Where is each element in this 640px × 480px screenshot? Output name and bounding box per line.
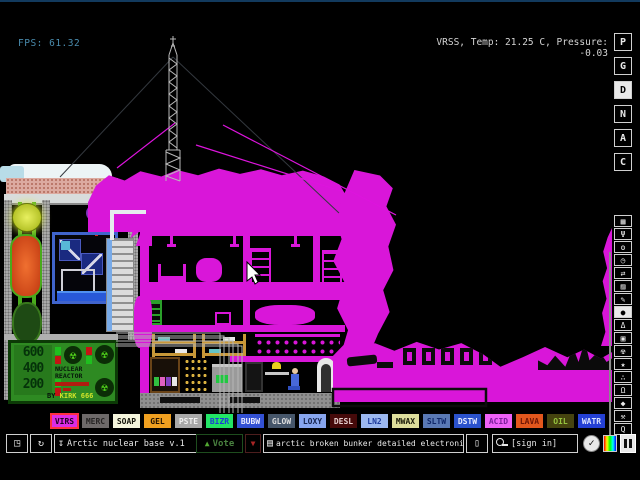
open-icon: ◳: [14, 438, 20, 449]
hanging-tools-rail: [255, 334, 340, 337]
console-machine: [212, 364, 242, 392]
element-palette: VIRSMERCSOAPGELPSTEBIZRBUBWGLOWLOXYDESLL…: [50, 413, 606, 429]
infected-floor: [148, 325, 345, 332]
option-button-g[interactable]: G: [614, 57, 632, 75]
hover-status-text: VRSS, Temp: 21.25 C, Pressure: -0.03: [404, 37, 608, 59]
debris-lump: [347, 354, 378, 366]
menu-icon-solids[interactable]: ▣: [614, 332, 632, 344]
vote-up-icon: ▲: [205, 439, 210, 448]
debris-window: [479, 348, 492, 365]
debris-window: [441, 348, 454, 365]
fps-counter: FPS: 61.32: [18, 38, 80, 49]
ceiling-lamp: [294, 236, 297, 244]
tags-icon: ▤: [267, 438, 273, 449]
menu-icon-electronics-plug[interactable]: Ψ: [614, 228, 632, 240]
pause-icon: [624, 439, 627, 448]
debris-window: [422, 348, 435, 365]
element-button-loxy[interactable]: LOXY: [298, 413, 327, 429]
bottle: [154, 377, 159, 386]
sign-title: NUCLEAR REACTOR: [55, 366, 95, 380]
infected-desk: [158, 264, 186, 282]
reactor-sign: 600 400 200 ☢ ☢ ☢ NUCLEAR REACTOR BY KIR…: [8, 340, 118, 404]
bottle: [172, 377, 177, 386]
interior-wall: [243, 300, 250, 325]
interior-wall: [313, 236, 320, 282]
reload-icon: ↻: [38, 438, 44, 449]
element-button-lava[interactable]: LAVA: [515, 413, 544, 429]
bunk-bed: [152, 334, 196, 358]
arch-door-inner: [321, 364, 331, 392]
option-button-a[interactable]: A: [614, 129, 632, 147]
bottle: [166, 377, 171, 386]
element-button-merc[interactable]: MERC: [81, 413, 110, 429]
bedding: [175, 349, 187, 353]
foundation-slab: [140, 393, 340, 408]
indicator-light: [55, 347, 61, 355]
sign-readout: 600 400 200: [14, 345, 52, 395]
by-label: BY: [47, 392, 55, 400]
sign-red-line: [55, 382, 89, 386]
shelf-rack: [250, 248, 271, 286]
open-simulation-button[interactable]: ◳: [6, 434, 28, 453]
canvas-edge-line: [609, 252, 611, 452]
bedding: [223, 337, 235, 341]
check-icon: ✓: [588, 438, 594, 449]
menu-icon-favorites[interactable]: ◆: [614, 397, 632, 409]
element-button-soap[interactable]: SOAP: [112, 413, 141, 429]
menu-icon-life-dots[interactable]: ∴: [614, 371, 632, 383]
element-button-ln2[interactable]: LN2: [360, 413, 389, 429]
table: [265, 372, 289, 375]
vote-up-button[interactable]: ▲ Vote: [196, 434, 243, 453]
conduit: [160, 397, 200, 403]
ceiling-lamp: [291, 244, 300, 247]
bunk-bed: [202, 334, 246, 358]
element-button-glow[interactable]: GLOW: [267, 413, 296, 429]
element-button-watr[interactable]: WATR: [577, 413, 606, 429]
infected-floor: [148, 282, 348, 300]
dotted-ladder: [184, 358, 208, 392]
indicator-light: [86, 356, 92, 364]
infected-blob: [255, 305, 315, 325]
element-button-acid[interactable]: ACID: [484, 413, 513, 429]
sign-in-button[interactable]: [sign in]: [492, 434, 578, 453]
vote-label: Vote: [213, 439, 235, 449]
vote-down-button[interactable]: ▼: [245, 434, 261, 453]
pause-button[interactable]: [620, 434, 636, 453]
tags-label: arctic broken bunker detailed electronic…: [276, 439, 464, 448]
infected-blob: [196, 258, 222, 282]
readout-line: 200: [14, 377, 52, 393]
clear-simulation-button[interactable]: ▯: [466, 434, 488, 453]
sidebar-option-buttons: PGDNAC: [614, 33, 632, 171]
tank-green: [12, 302, 42, 344]
interior-wall: [243, 236, 250, 282]
menu-icon-powered[interactable]: ʘ: [614, 241, 632, 253]
new-file-icon: ▯: [474, 438, 480, 449]
ceiling-lamp: [230, 244, 239, 247]
bedding: [209, 349, 221, 353]
readout-line: 400: [14, 361, 52, 377]
bottle: [160, 377, 165, 386]
element-button-bizr[interactable]: BIZR: [205, 413, 234, 429]
hanging-tools: [255, 338, 340, 356]
radiation-symbol: ☢: [95, 345, 114, 364]
option-button-n[interactable]: N: [614, 105, 632, 123]
heat-exchanger: [106, 238, 134, 332]
table-lamp: [272, 362, 281, 369]
lockers: [150, 357, 180, 393]
arch-door: [317, 358, 335, 392]
virus-ground: [333, 338, 612, 402]
menu-icon-explosives-spray[interactable]: ▨: [614, 280, 632, 292]
element-button-oil[interactable]: OIL: [546, 413, 575, 429]
menu-icon-hammer[interactable]: ⚒: [614, 410, 632, 422]
author-name: KIRK 666: [60, 392, 94, 400]
sandbox-check-button[interactable]: ✓: [583, 435, 600, 452]
radiation-symbol: ☢: [95, 378, 114, 397]
cyan-console: [61, 241, 70, 250]
menu-icon-sensors-gauge[interactable]: ◷: [614, 254, 632, 266]
menu-icon-gases-lamp[interactable]: Ω: [614, 384, 632, 396]
key-icon: [496, 438, 508, 449]
simulation-canvas[interactable]: 600 400 200 ☢ ☢ ☢ NUCLEAR REACTOR BY KIR…: [0, 0, 612, 455]
tank-orange: [10, 234, 42, 298]
option-button-c[interactable]: C: [614, 153, 632, 171]
menu-icon-special-star[interactable]: ★: [614, 358, 632, 370]
save-name-label: Arctic nuclear base v.1: [67, 439, 185, 449]
sign-byline: BY KIRK 666: [47, 392, 93, 400]
element-button-mwax[interactable]: MWAX: [391, 413, 420, 429]
building-ceiling: [140, 228, 348, 236]
radiation-symbol: ☢: [64, 346, 82, 364]
indicator-light: [86, 347, 92, 355]
reload-button[interactable]: ↻: [30, 434, 52, 453]
powder-game-window: 600 400 200 ☢ ☢ ☢ NUCLEAR REACTOR BY KIR…: [0, 0, 640, 480]
fridge: [245, 362, 263, 392]
element-button-pste[interactable]: PSTE: [174, 413, 203, 429]
debris-window: [403, 348, 416, 365]
exchanger-coolant-strip: [107, 239, 112, 331]
radio-tower: [166, 36, 180, 181]
sidebar-menu-buttons: ▦Ψʘ◷⇄▨✎●Δ▣☢★∴Ω◆⚒Q: [614, 215, 632, 435]
menu-icon-force-arrows[interactable]: ⇄: [614, 267, 632, 279]
indicator-light: [55, 356, 61, 364]
bedding: [158, 337, 170, 341]
decoration-button[interactable]: [603, 435, 617, 452]
element-button-gel[interactable]: GEL: [143, 413, 172, 429]
coolant-water: [57, 291, 113, 301]
option-button-p[interactable]: P: [614, 33, 632, 51]
conduit: [230, 397, 260, 403]
menu-icon-radioactive[interactable]: ☢: [614, 345, 632, 357]
readout-line: 600: [14, 345, 52, 361]
element-button-sltw[interactable]: SLTW: [422, 413, 451, 429]
debris-lump: [377, 362, 393, 368]
save-icon: ↧: [58, 438, 64, 449]
shelf-rack: [322, 250, 342, 286]
element-button-dstw[interactable]: DSTW: [453, 413, 482, 429]
ceiling-lamp: [233, 236, 236, 244]
save-button[interactable]: ↧ Arctic nuclear base v.1: [54, 434, 203, 453]
menu-icon-console[interactable]: ▦: [614, 215, 632, 227]
debris-window: [460, 348, 473, 365]
small-table: [215, 312, 231, 325]
debris-pole: [569, 324, 578, 352]
tags-button[interactable]: ▤ arctic broken bunker detailed electron…: [263, 434, 464, 453]
tank-yellow: [12, 203, 42, 232]
ceiling-lamp: [170, 236, 173, 244]
element-button-virs[interactable]: VIRS: [50, 413, 79, 429]
menu-icon-tools-pencil[interactable]: ✎: [614, 293, 632, 305]
virus-lump: [134, 296, 152, 348]
ceiling-lamp: [167, 244, 176, 247]
chair: [288, 386, 300, 390]
menu-icon-liquids-droplet[interactable]: ●: [614, 306, 632, 318]
menu-icon-powders-flask[interactable]: Δ: [614, 319, 632, 331]
element-button-bubw[interactable]: BUBW: [236, 413, 265, 429]
sign-red-mark: [63, 388, 71, 391]
console-screen: [216, 375, 228, 383]
vote-down-icon: ▼: [251, 439, 256, 448]
element-button-desl[interactable]: DESL: [329, 413, 358, 429]
bunker-wall-mid: [42, 200, 50, 340]
option-button-d[interactable]: D: [614, 81, 632, 99]
sign-in-label: [sign in]: [511, 439, 557, 449]
